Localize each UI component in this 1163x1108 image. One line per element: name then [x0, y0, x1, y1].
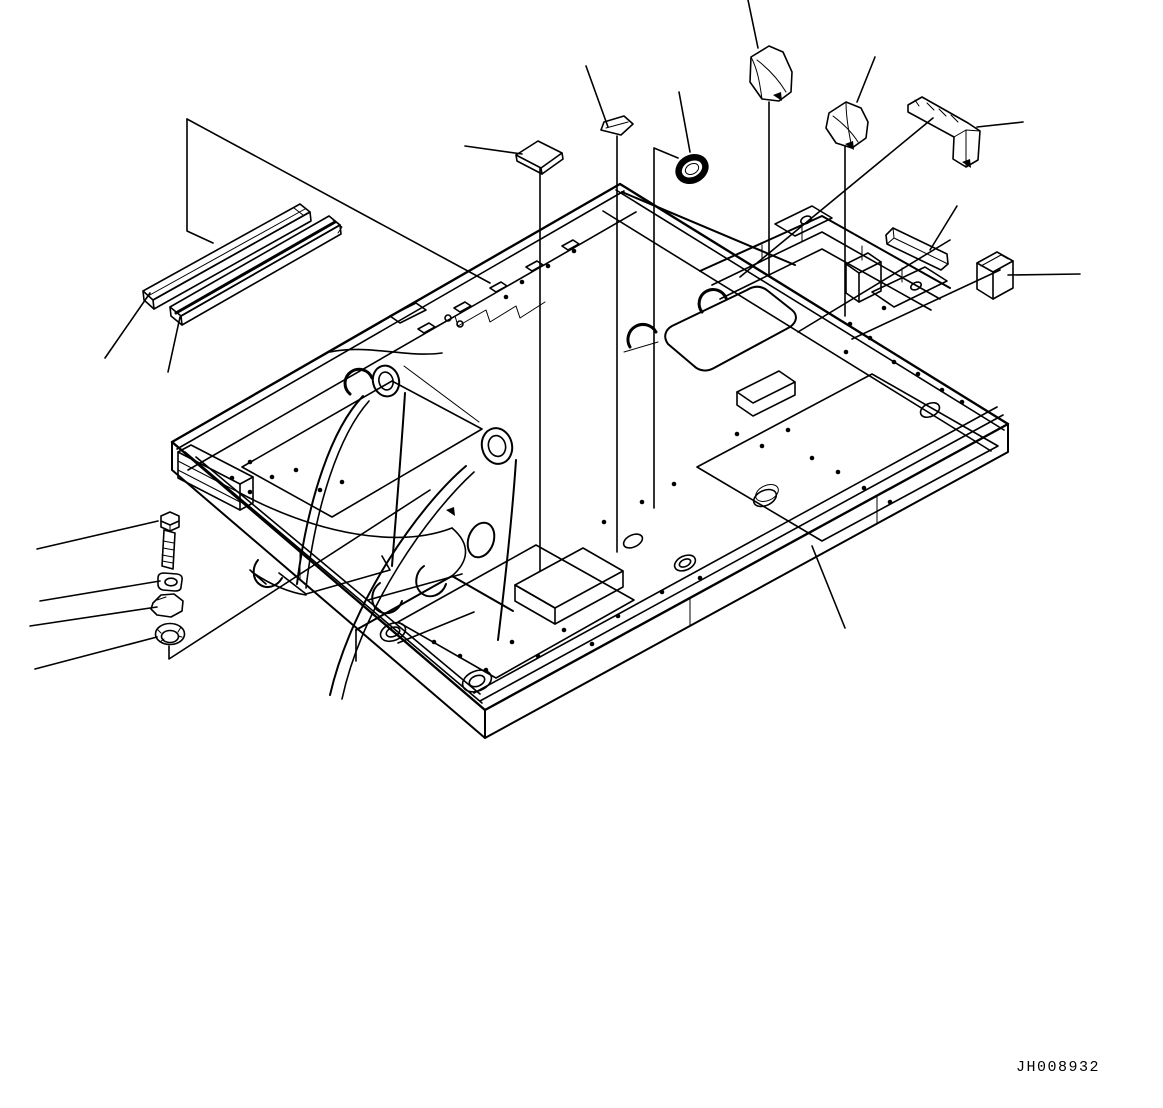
- leader-cap: [35, 637, 157, 669]
- frame-outline: [172, 184, 1008, 710]
- frame-front-left-face: [172, 442, 485, 738]
- leader-corner-block: [977, 122, 1023, 127]
- leader-pad-block: [1008, 274, 1080, 275]
- cap: [156, 624, 185, 645]
- plug: [151, 594, 183, 617]
- rail-left-inner-2: [188, 212, 636, 470]
- leader-bolt: [37, 521, 158, 549]
- leader-strip-lower: [168, 317, 180, 372]
- leader-bar-strip-long: [798, 240, 950, 332]
- leader-strips-elbow: [187, 119, 213, 243]
- leader-strips-long: [187, 119, 490, 283]
- leader-small-pad: [586, 66, 608, 127]
- rail-right-inner-1: [616, 190, 1004, 430]
- leader-ring-drop: [654, 148, 678, 508]
- box-bracket-mid: [737, 371, 795, 416]
- cover-block-front: [750, 46, 792, 101]
- seal-strip-lower: [170, 216, 342, 325]
- deck-panel-rear-left: [242, 381, 482, 517]
- front-corner-platform: [356, 576, 513, 696]
- leader-cover-front: [748, 0, 758, 48]
- ring-grommet: [674, 153, 709, 186]
- bolt-hole-dots: [230, 249, 965, 673]
- deck-panel-front: [398, 545, 634, 678]
- leader-pad-block-long: [852, 270, 1000, 339]
- corner-cushion-block: [908, 97, 980, 168]
- hex-bolt: [161, 512, 179, 569]
- leader-plug: [30, 607, 157, 626]
- leader-square-pad: [465, 146, 522, 154]
- leader-strip-upper: [105, 293, 150, 358]
- parts-diagram: JH008932: [0, 0, 1163, 1108]
- cable-bracket-left: [345, 369, 372, 394]
- front-left-lip: [185, 452, 482, 703]
- leader-hardware-long: [169, 490, 430, 659]
- cable-brackets-right: [624, 290, 726, 352]
- deck-raised-box: [515, 548, 623, 624]
- floor-curve-2: [452, 528, 466, 576]
- leader-main-frame: [812, 546, 845, 628]
- washer: [158, 573, 182, 591]
- leader-lines: [30, 0, 1080, 669]
- frame-front-right-face: [485, 424, 1008, 738]
- leader-washer: [40, 581, 160, 601]
- leader-cover-rear: [857, 57, 875, 102]
- drawing-number: JH008932: [1016, 1059, 1100, 1076]
- cover-block-rear: [826, 102, 868, 150]
- parts-diagram-canvas: [0, 0, 1163, 1108]
- main-frame: [172, 184, 1008, 738]
- deck-opening: [665, 287, 796, 371]
- rail-left-inner-1: [177, 191, 624, 449]
- leader-ring: [679, 92, 690, 152]
